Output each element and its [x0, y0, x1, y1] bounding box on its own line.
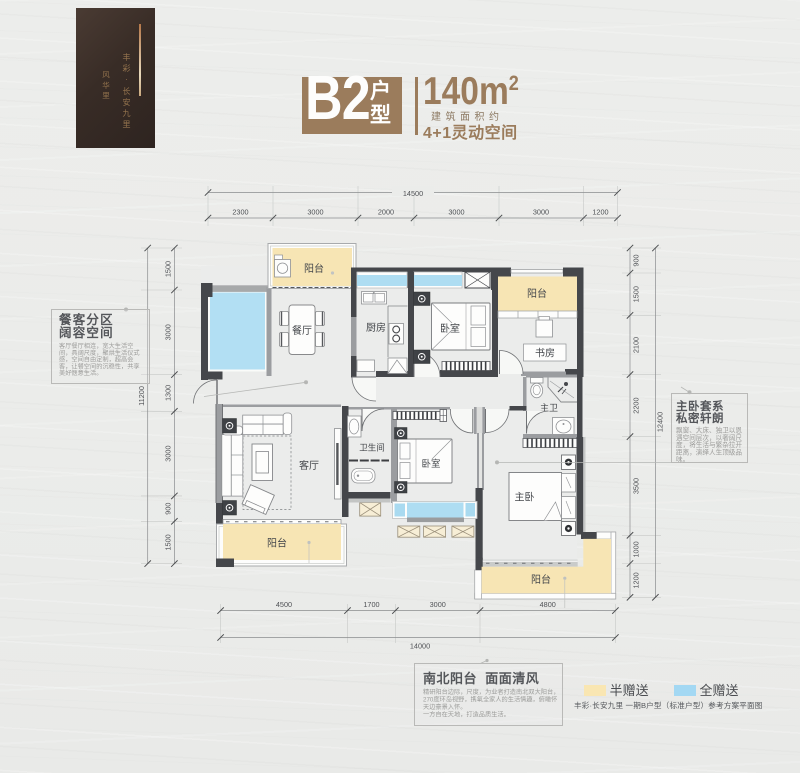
svg-text:卧室: 卧室 — [421, 458, 440, 470]
svg-text:3000: 3000 — [533, 208, 549, 217]
svg-text:厨房: 厨房 — [366, 321, 386, 334]
svg-text:1700: 1700 — [363, 600, 379, 609]
svg-text:主卧: 主卧 — [515, 491, 535, 504]
svg-text:客厅: 客厅 — [299, 459, 319, 472]
svg-text:1500: 1500 — [164, 534, 173, 550]
svg-text:1000: 1000 — [632, 541, 641, 557]
svg-text:书房: 书房 — [535, 347, 555, 360]
svg-text:1200: 1200 — [592, 208, 608, 217]
svg-text:1300: 1300 — [164, 385, 173, 401]
svg-text:2300: 2300 — [232, 208, 248, 217]
svg-text:1500: 1500 — [632, 286, 641, 302]
svg-text:阳台: 阳台 — [531, 573, 551, 586]
svg-text:2200: 2200 — [632, 397, 641, 413]
svg-text:3000: 3000 — [448, 208, 464, 217]
svg-text:3000: 3000 — [164, 324, 173, 340]
svg-text:1500: 1500 — [164, 261, 173, 277]
svg-text:1200: 1200 — [632, 572, 641, 588]
svg-text:卧室: 卧室 — [440, 322, 460, 335]
svg-text:3000: 3000 — [164, 445, 173, 461]
svg-text:14000: 14000 — [410, 642, 430, 651]
svg-text:11200: 11200 — [137, 386, 146, 406]
svg-text:2000: 2000 — [378, 208, 394, 217]
svg-text:阳台: 阳台 — [527, 287, 547, 300]
svg-text:4500: 4500 — [276, 600, 292, 609]
svg-text:2100: 2100 — [632, 337, 641, 353]
svg-text:卫生间: 卫生间 — [359, 443, 385, 453]
svg-text:3500: 3500 — [632, 478, 641, 494]
svg-text:阳台: 阳台 — [304, 262, 324, 275]
svg-text:900: 900 — [164, 503, 173, 515]
svg-text:阳台: 阳台 — [267, 537, 287, 550]
svg-text:餐厅: 餐厅 — [292, 324, 312, 337]
svg-text:900: 900 — [632, 254, 641, 266]
svg-text:14500: 14500 — [403, 189, 423, 198]
svg-text:3000: 3000 — [307, 208, 323, 217]
svg-text:4800: 4800 — [540, 600, 556, 609]
svg-text:12400: 12400 — [656, 412, 665, 432]
svg-text:3000: 3000 — [430, 600, 446, 609]
